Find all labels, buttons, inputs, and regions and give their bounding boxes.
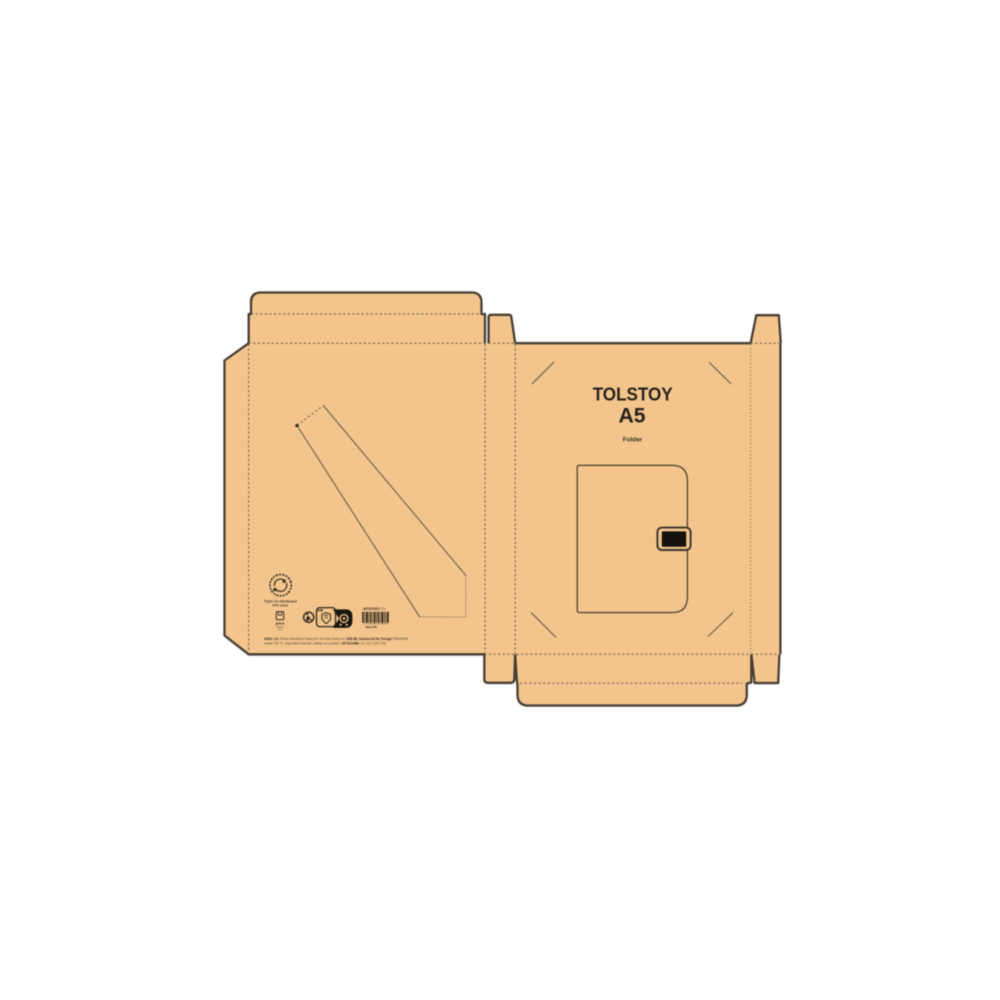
svg-text:Made in PRC: Made in PRC <box>366 625 378 629</box>
svg-text:30% base: 30% base <box>272 604 288 608</box>
svg-text:AFD0002: AFD0002 <box>363 607 380 611</box>
svg-text:TOLSTOY: TOLSTOY <box>593 383 673 404</box>
svg-text:/Tx: /Tx <box>381 607 386 611</box>
svg-text:under 25 °C, imported therein.: under 25 °C, imported therein. Made in L… <box>264 641 386 645</box>
svg-text:grams: grams <box>276 621 285 625</box>
svg-text:A5: A5 <box>619 405 646 428</box>
svg-text:Folder: Folder <box>623 436 643 443</box>
